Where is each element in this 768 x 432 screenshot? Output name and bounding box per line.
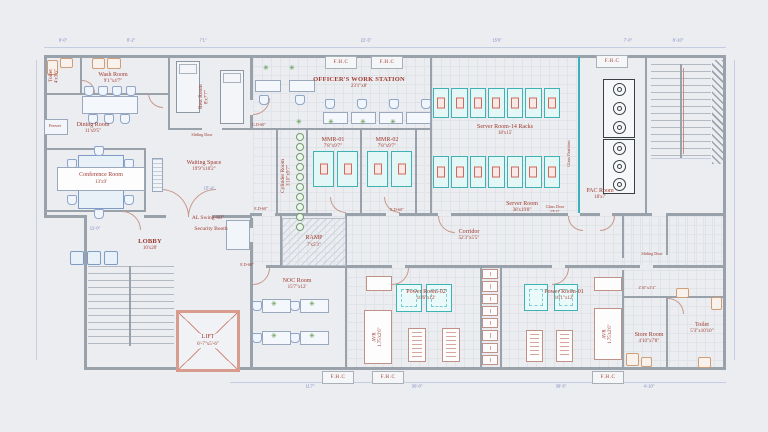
chair-icon: [252, 333, 262, 343]
chair-icon: [325, 99, 335, 109]
stairs-right-rail: [680, 64, 682, 158]
plant-icon: ✳: [296, 119, 302, 126]
sofa-icon: [70, 251, 84, 265]
stairs-right-section-line: [683, 68, 684, 154]
plant-icon: ✳: [309, 301, 315, 308]
wall-left-upper: [44, 55, 47, 218]
door-arc: [188, 189, 216, 217]
door-arc: [161, 189, 189, 217]
wall-pac-right: [645, 55, 647, 215]
electrical-panel: [482, 330, 498, 340]
noc-room-label: NOC Room15'7"x12': [266, 278, 328, 291]
cylinder-icon: [296, 153, 304, 161]
fan-icon: [613, 160, 626, 173]
lobby-label: LOBBY10'x20': [120, 238, 180, 252]
rest-room-label: Rest Room8'x7'7": [198, 76, 214, 118]
dim-text: 7'1": [193, 39, 214, 43]
electrical-panel: [482, 306, 498, 316]
cylinder-icon: [296, 183, 304, 191]
wall-rest-bottom-2: [222, 128, 252, 130]
store-fixture: [641, 357, 652, 367]
fan-icon: [613, 121, 626, 134]
server-rack: [367, 151, 388, 187]
lift: LIFT6'-7"x5'-6": [176, 310, 240, 372]
desk-icon: [255, 80, 281, 92]
toilet-br-label: Toilet5'3"x10'10": [672, 322, 732, 335]
server-rack: [451, 156, 467, 188]
chair-icon: [357, 99, 367, 109]
server-rack: [313, 151, 334, 187]
dining-chairs-top: [84, 86, 136, 95]
cylinder-bank: [294, 133, 305, 213]
dim-text: 15'6": [487, 39, 508, 43]
server-rack: [507, 88, 523, 118]
dim-text: 22'-5": [356, 39, 377, 43]
chair-icon: [112, 86, 122, 96]
glass-door-label: Glass Door3'8"x7': [545, 205, 565, 214]
fan-icon: [613, 142, 626, 155]
sofa-icon: [104, 251, 118, 265]
sink-fixture: [676, 288, 689, 298]
avr-label: AVR1.75'x2'6": [603, 324, 614, 343]
wall-officer-left: [250, 55, 253, 130]
wash-room-label: Wash Room9'1"x4'7": [84, 72, 142, 85]
dim-text: 4'-10": [639, 385, 660, 389]
wall-rightblock-left-2: [622, 270, 624, 368]
cylinder-icon: [296, 203, 304, 211]
wall-left-step: [44, 215, 87, 218]
conference-room-label-box: Conference Room13'x9': [57, 167, 145, 191]
bed: [220, 70, 244, 124]
toilet-tl-label: Toilet4'x3'6": [48, 58, 66, 94]
store-fixture: [626, 353, 639, 366]
wall-cylinder-left: [276, 130, 278, 215]
electrical-panel: [482, 269, 498, 279]
chair-icon: [290, 333, 300, 343]
wall-officer-bottom: [252, 128, 432, 130]
chair-icon: [295, 95, 305, 105]
pac-room-label: PAC Room18'x7': [578, 188, 622, 201]
battery-rack: [442, 328, 460, 362]
door-tag: E.D-60": [238, 263, 256, 268]
server-rack: [337, 151, 358, 187]
wall-rest-left: [168, 55, 170, 130]
door-gap: [262, 213, 275, 216]
wall-rightblock-upper-div: [666, 215, 668, 255]
door-tag: E.D-60": [252, 207, 270, 212]
dim-text: 11'7": [300, 385, 321, 389]
pac-unit: [603, 139, 635, 194]
ramp: RAMP7'x5'3": [282, 218, 346, 266]
stairs-right-hatch-wall: [712, 60, 724, 164]
door-gap: [332, 213, 345, 216]
electrical-panel: [482, 281, 498, 291]
ups-box: [366, 276, 392, 291]
fan-icon: [613, 102, 626, 115]
security-booth-label: Security Booth: [194, 226, 228, 233]
wall-rightblock-left-1: [622, 216, 624, 258]
server-rack: [525, 88, 541, 118]
dining-room-label: Dining Room11'x9'5": [62, 122, 124, 135]
chair-icon: [126, 86, 136, 96]
officer-desks-main: [323, 112, 431, 124]
wall-rest-bottom-1: [168, 128, 202, 130]
al-swing-label: AL Swing-60": [178, 215, 238, 222]
sink-fixture: [711, 297, 722, 310]
cylinder-icon: [296, 133, 304, 141]
chair-icon: [94, 146, 104, 156]
passage-size-label: 4'10"x3'4": [635, 286, 658, 291]
floor-plan-sheet: Glass Partition UP LIFT6'-7"x5'-6" RAMP7…: [0, 0, 768, 432]
server-racks-row-1: [433, 88, 560, 118]
ups-box: [594, 277, 622, 291]
dining-table: [82, 96, 138, 114]
chair-icon: [94, 209, 104, 219]
door-arc: [148, 93, 163, 108]
fhc-box: F.H.C: [596, 55, 628, 68]
cylinder-icon: [296, 213, 304, 221]
plant-icon: ✳: [271, 333, 277, 340]
avr-label: AVR1.75'x2'6": [373, 327, 384, 346]
cylinder-room-label: Cylinder Room3'10"x9'7": [280, 146, 295, 206]
electrical-panel: [482, 294, 498, 304]
sink-fixture: [107, 58, 121, 69]
avr-unit: AVR1.75'x2'6": [364, 310, 392, 364]
battery-rack: [408, 328, 426, 362]
cylinder-icon: [296, 163, 304, 171]
security-booth-box: [226, 220, 250, 250]
battery-rack: [526, 330, 543, 362]
freezer-label: Freezer: [48, 124, 63, 129]
cylinder-icon: [296, 223, 304, 231]
dim-line-left: [36, 60, 37, 360]
server-rack: [470, 88, 486, 118]
server-racks-row-2: [433, 156, 560, 188]
avr-unit: AVR1.75'x2'6": [594, 308, 622, 360]
door-gap: [386, 213, 399, 216]
server-rack: [544, 156, 560, 188]
sliding-door-label: Sliding Door: [637, 252, 667, 257]
door-arc: [122, 211, 141, 230]
server-rack: [507, 156, 523, 188]
server-rack: [525, 156, 541, 188]
stairs-up: [88, 266, 174, 346]
sink-fixture: [92, 58, 105, 69]
officer-chairs-upper: [259, 95, 305, 104]
fhc-box: F.H.C: [371, 56, 403, 69]
cylinder-icon: [296, 143, 304, 151]
store-room-label: Store Room4'10"x7'8": [628, 332, 670, 345]
server-rack: [433, 156, 449, 188]
chair-icon: [124, 195, 134, 205]
mmr1-racks: [313, 151, 358, 187]
bed: [176, 61, 200, 113]
electrical-panel: [482, 343, 498, 353]
desk-icon: [406, 112, 431, 124]
server-racks-label: Server Room-14 Racks18'x15': [458, 124, 552, 137]
waiting-space-label: Waiting Space19'9"x10'2": [168, 160, 240, 173]
door-gap: [652, 213, 666, 216]
chair-icon: [67, 195, 77, 205]
dim-text: 7'-0": [618, 39, 639, 43]
dim-text: 11'-0": [85, 227, 106, 231]
ramp-label: RAMP7'x5'3": [305, 235, 322, 248]
chair-icon: [259, 95, 269, 105]
sofa-icon: [87, 251, 101, 265]
server-rack: [470, 156, 486, 188]
electrical-panel-column: [482, 269, 498, 365]
electrical-panel: [482, 355, 498, 365]
server-rack: [451, 88, 467, 118]
wall-panel-right: [500, 265, 502, 368]
pac-unit: [603, 79, 635, 138]
chair-icon: [98, 86, 108, 96]
wall-mmr-div-3: [415, 130, 417, 215]
wall-server-left: [430, 55, 432, 215]
conference-room-label: Conference Room13'x9': [79, 172, 123, 185]
plant-icon: ✳: [328, 119, 334, 126]
stairs-right-landing: [651, 158, 711, 159]
officer-chairs-main: [325, 99, 431, 108]
fhc-box: F.H.C: [322, 371, 354, 384]
server-rack: [433, 88, 449, 118]
fhc-box: F.H.C: [592, 371, 624, 384]
mmr1-label: MMR-017'8"x9'7": [308, 137, 358, 150]
battery-rack: [556, 330, 573, 362]
power-room-1-label: Power Room-0116'1"x12': [532, 289, 596, 302]
stairs-up-rail: [129, 266, 131, 346]
mmr2-label: MMR-027'8"x9'7": [362, 137, 412, 150]
fhc-box: F.H.C: [325, 56, 357, 69]
plant-icon: ✳: [271, 301, 277, 308]
power-room-2-label: Power Room-0216'6"x12': [394, 289, 458, 302]
dim-line-right: [734, 60, 735, 360]
electrical-panel: [482, 318, 498, 328]
dim-text: 15'-4": [199, 187, 220, 191]
dim-line-top: [44, 47, 726, 48]
door-tag: G.D-60": [250, 123, 268, 128]
plant-icon: ✳: [263, 65, 269, 72]
chair-icon: [389, 99, 399, 109]
chair-icon: [252, 301, 262, 311]
server-rack: [544, 88, 560, 118]
chair-icon: [421, 99, 431, 109]
officer-ws-label: OFFICER'S WORK STATION23'1"x8': [295, 76, 423, 90]
wall-noc-right: [345, 265, 347, 368]
desk-icon: [323, 112, 348, 124]
dim-text: 8'-10": [668, 39, 689, 43]
chair-icon: [84, 86, 94, 96]
plant-icon: ✳: [360, 119, 366, 126]
door-tag: E.D-60": [388, 208, 406, 213]
dim-text: 38'-5": [551, 385, 572, 389]
plant-icon: ✳: [309, 333, 315, 340]
cylinder-icon: [296, 193, 304, 201]
door-gap: [250, 228, 253, 242]
wall-left-lower: [84, 215, 87, 370]
server-rack: [488, 156, 504, 188]
lift-label: LIFT6'-7"x5'-6": [195, 334, 221, 347]
server-rack: [488, 88, 504, 118]
chair-icon: [290, 301, 300, 311]
plant-icon: ✳: [289, 65, 295, 72]
plant-icon: ✳: [390, 119, 396, 126]
corridor-label: Corridor52'3"x5'5": [436, 229, 502, 242]
waiting-planter: [152, 158, 163, 192]
dim-text: 8'-2": [121, 39, 142, 43]
wc-fixture: [698, 357, 711, 368]
door-gap: [640, 265, 653, 268]
sliding-door-label: Sliding Door: [187, 133, 217, 138]
dim-line-bottom: [230, 382, 726, 383]
server-rack: [391, 151, 412, 187]
dim-text: 30'-0": [407, 385, 428, 389]
mmr2-racks: [367, 151, 412, 187]
fhc-box: F.H.C: [372, 371, 404, 384]
fan-icon: [613, 83, 626, 96]
cylinder-icon: [296, 173, 304, 181]
glass-partition-label: Glass Partition: [566, 126, 576, 182]
dim-text: 9'-0": [53, 39, 74, 43]
lobby-sofas: [70, 251, 118, 265]
